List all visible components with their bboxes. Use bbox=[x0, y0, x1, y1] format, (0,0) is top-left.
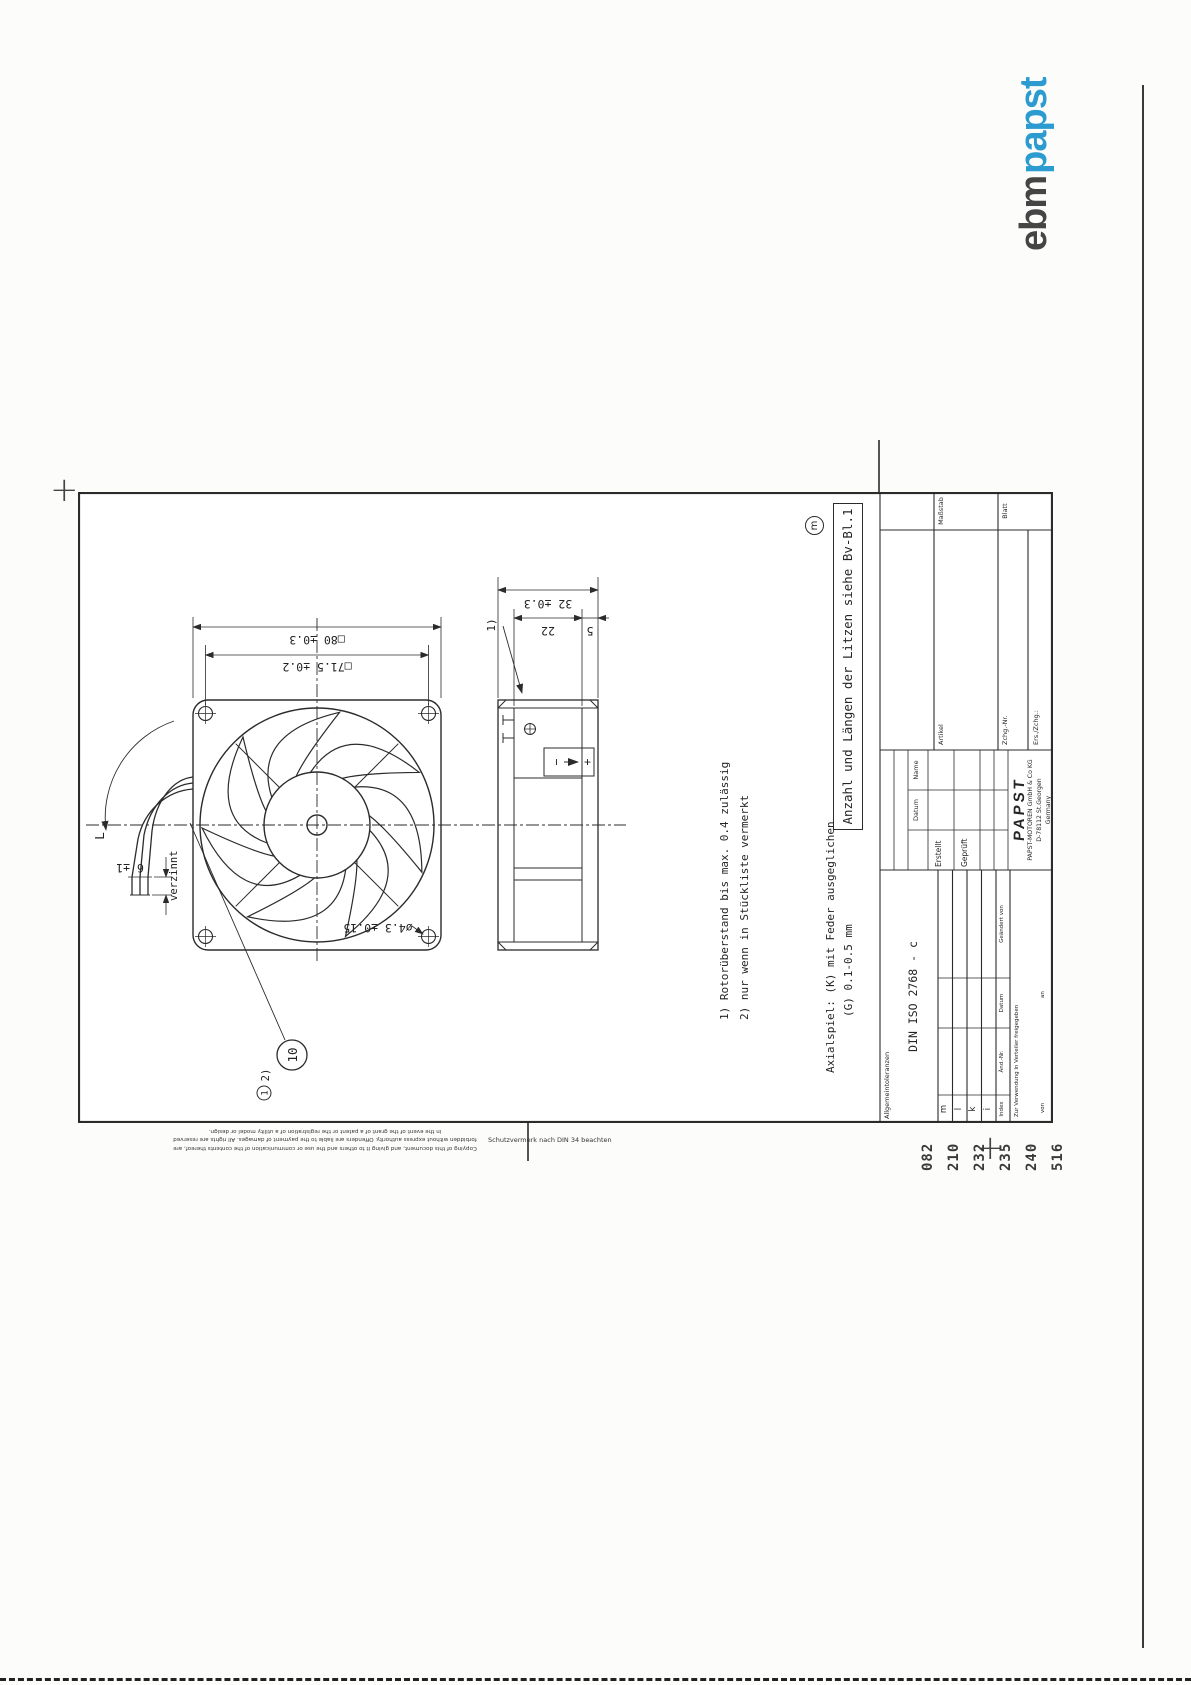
din34-note: Schutzvermerk nach DIN 34 beachten bbox=[488, 1136, 612, 1144]
page-right-rule bbox=[1142, 85, 1144, 1648]
dim-pitch-label: □71.5 ±0.2 bbox=[282, 660, 351, 674]
dim-flange-label: 5 bbox=[587, 624, 594, 638]
lead-length-arc bbox=[105, 721, 174, 830]
revision-mark-circle: m bbox=[805, 516, 824, 535]
distribution-code: 235 bbox=[998, 1143, 1014, 1171]
depth-dims bbox=[498, 577, 609, 706]
massstab-label: Maßstab bbox=[937, 492, 945, 530]
geprueft-label: Geprüft bbox=[960, 839, 969, 867]
artikel-label: Artikel bbox=[937, 724, 945, 745]
company-city: D-78112 St.Georgen bbox=[1036, 750, 1043, 870]
registration-mark-topleft: + bbox=[50, 470, 79, 510]
distribution-code: 516 bbox=[1050, 1143, 1066, 1171]
note-axialspiel-2: (G) 0.1-0.5 mm bbox=[842, 924, 855, 1017]
distribution-code: 240 bbox=[1024, 1143, 1040, 1171]
polarity-plus: + bbox=[580, 758, 594, 765]
footnote1-ref: 1) bbox=[485, 618, 498, 631]
note-axialspiel: Axialspiel: (K) mit Feder ausgeglichen bbox=[824, 821, 837, 1073]
aend-nr-header: Änd.-Nr. bbox=[999, 1028, 1005, 1095]
datum-column-header: Datum bbox=[912, 790, 920, 830]
distribution-code: 232 bbox=[972, 1143, 988, 1171]
datum-header-index: Datum bbox=[999, 978, 1005, 1028]
index-row: l bbox=[954, 1095, 964, 1123]
dim-depth-label: 32 ±0.3 bbox=[524, 597, 573, 611]
index-row: k bbox=[968, 1095, 978, 1123]
index-header: Index bbox=[999, 1095, 1005, 1123]
verteiler-note: Zur Verwendung In Verteiler freigegeben bbox=[1014, 877, 1020, 1117]
erstellt-label: Erstellt bbox=[934, 841, 943, 867]
ebmpapst-logo: ebmpapst bbox=[1002, 83, 1066, 253]
blatt-label: Blatt bbox=[1001, 492, 1009, 530]
dimension-texts: □80 ±0.3 □71.5 ±0.2 ø4.3 ±0.15 32 ±0.3 2… bbox=[92, 597, 594, 1096]
zchg-nr-label: Zchg.-Nr. bbox=[1001, 715, 1009, 745]
verteiler-an: an bbox=[1040, 991, 1046, 998]
impeller-blades bbox=[193, 701, 436, 943]
note1-leader bbox=[503, 626, 522, 693]
name-column-header: Name bbox=[912, 750, 920, 790]
tinned-note-label: verzinnt bbox=[168, 850, 180, 901]
dim-mid-label: 22 bbox=[541, 624, 555, 638]
drawing-sheet: □80 ±0.3 □71.5 ±0.2 ø4.3 ±0.15 32 ±0.3 2… bbox=[78, 492, 1053, 1123]
company-country: Germany bbox=[1045, 750, 1052, 870]
note-rotor: 1) Rotorüberstand bis max. 0.4 zulässig bbox=[718, 762, 731, 1020]
note-stueckliste: 2) nur wenn in Stückliste vermerkt bbox=[738, 795, 751, 1020]
footnote2-ref: 2) bbox=[260, 1069, 272, 1082]
fold-mark-top bbox=[878, 440, 880, 492]
hole-dim-leader bbox=[412, 926, 423, 934]
terminal-pins bbox=[503, 715, 536, 743]
page-bottom-edge bbox=[0, 1678, 1191, 1681]
page: ebmpapst + + Copying of this document, a… bbox=[0, 0, 1191, 1685]
allgemeintoleranzen-label: Allgemeintoleranzen bbox=[883, 1052, 891, 1119]
logo-text-papst: papst bbox=[1013, 78, 1056, 174]
verteiler-von: von bbox=[1040, 1103, 1046, 1113]
copyright-line: in the event of the grant of a patent or… bbox=[85, 1126, 565, 1135]
index-row: m bbox=[939, 1095, 949, 1123]
distribution-code: 210 bbox=[946, 1143, 962, 1171]
lead-length-label: L bbox=[92, 832, 107, 840]
dim-hole-label: ø4.3 ±0.15 bbox=[343, 921, 412, 935]
ers-zchg-label: Ers./Zchg.: bbox=[1032, 710, 1040, 745]
dim-side-label: □80 ±0.3 bbox=[289, 633, 344, 647]
polarity-minus: − bbox=[549, 758, 563, 765]
litzen-note-box: Anzahl und Längen der Litzen siehe Bv-Bl… bbox=[833, 503, 863, 830]
distribution-code: 082 bbox=[920, 1143, 936, 1171]
balloon-number: 10 bbox=[285, 1047, 300, 1062]
din-iso-value: DIN ISO 2768 - c bbox=[906, 870, 920, 1123]
geaendert-von-header: Geändert von bbox=[999, 870, 1005, 978]
logo-text-ebm: ebm bbox=[1013, 176, 1056, 251]
circled-one: 1 bbox=[261, 1090, 271, 1095]
index-row: i bbox=[983, 1095, 993, 1123]
dim-tinned-label: 6 ±1 bbox=[116, 861, 144, 875]
papst-wordmark: PAPST bbox=[1011, 749, 1028, 869]
company-name: PAPST-MOTOREN GmbH & Co KG bbox=[1027, 750, 1034, 870]
copyright-line: Copying of this document, and giving it … bbox=[85, 1143, 565, 1152]
